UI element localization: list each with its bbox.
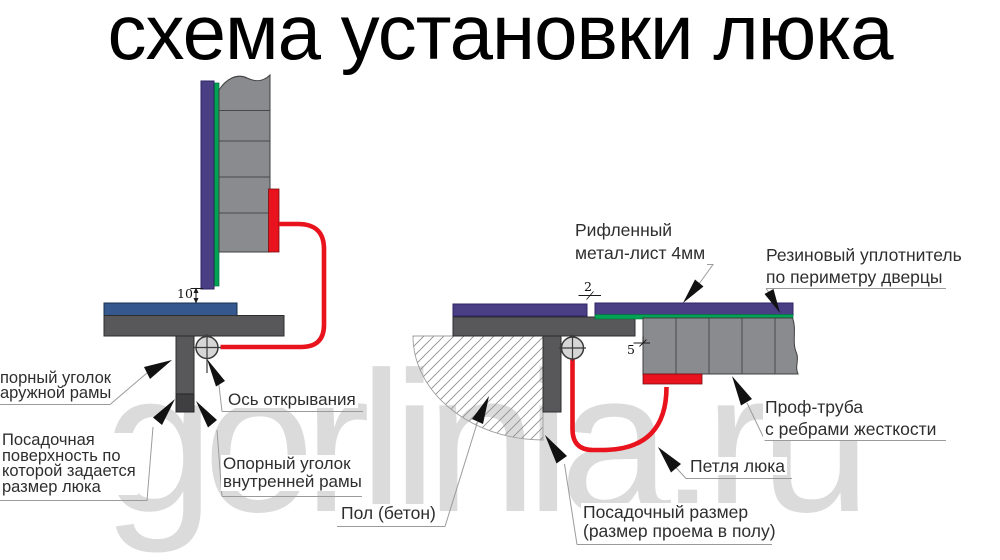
- label-line: Пол (бетон): [341, 504, 436, 522]
- label-line: с ребрами жесткости: [765, 418, 936, 440]
- label-line: Петля люка: [690, 457, 785, 475]
- page-title: схема установки люка: [0, 0, 1000, 72]
- label-seating-size: Посадочный размер (размер проема в полу): [581, 503, 778, 541]
- diagram-page: gorlinia.ru схема установки люка: [0, 0, 1000, 560]
- concrete-floor-hatch: [413, 336, 543, 440]
- label-line: аружной рамы: [0, 386, 111, 401]
- label-line: Посадочный размер: [583, 503, 776, 522]
- dimension-10: 10: [177, 287, 193, 300]
- label-line: по периметру дверцы: [766, 266, 962, 288]
- label-line: Рифленный: [575, 219, 705, 242]
- dimension-5: 5: [627, 343, 635, 356]
- label-opening-axis: Ось открывания: [226, 391, 358, 408]
- label-line: Проф-труба: [765, 396, 936, 418]
- door-seal-vertical: [215, 83, 220, 286]
- label-outer-frame-angle: порный уголок аружной рамы: [0, 371, 113, 401]
- label-inner-frame-angle: Опорный уголок внутренней рамы: [221, 455, 364, 491]
- frame-leg: [543, 336, 561, 412]
- label-riffled-sheet: Рифленный метал-лист 4мм: [573, 219, 707, 265]
- hinge-plate-red: [643, 374, 702, 384]
- label-rubber-seal: Резиновый уплотнитель по периметру дверц…: [764, 244, 964, 288]
- door-sheet: [595, 303, 793, 316]
- label-seating-surface: Посадочная поверхность по которой задает…: [0, 433, 138, 495]
- label-line: размер люка: [2, 480, 136, 496]
- label-line: внутренней рамы: [223, 473, 362, 491]
- frame-leg-tip: [176, 394, 194, 412]
- frame-bar: [453, 317, 635, 336]
- frame-bar: [104, 316, 284, 337]
- hinge-plate-red: [269, 189, 280, 252]
- label-line: метал-лист 4мм: [575, 242, 705, 265]
- label-line: Ось открывания: [228, 391, 356, 408]
- label-hatch-hinge: Петля люка: [688, 457, 787, 475]
- door-sheet-vertical: [201, 81, 214, 289]
- frame-sheet: [453, 304, 587, 316]
- frame-leg: [176, 336, 194, 395]
- label-line: Опорный уголок: [223, 455, 362, 473]
- axis-crosshair: [559, 335, 586, 362]
- label-line: Резиновый уплотнитель: [766, 244, 962, 266]
- door-tube-block: [219, 75, 270, 252]
- label-profile-tube: Проф-труба с ребрами жесткости: [763, 396, 938, 440]
- label-concrete-floor: Пол (бетон): [339, 504, 438, 522]
- frame-sheet-blue: [104, 303, 237, 316]
- label-line: (размер проема в полу): [583, 522, 776, 541]
- dimension-2: 2: [584, 280, 592, 293]
